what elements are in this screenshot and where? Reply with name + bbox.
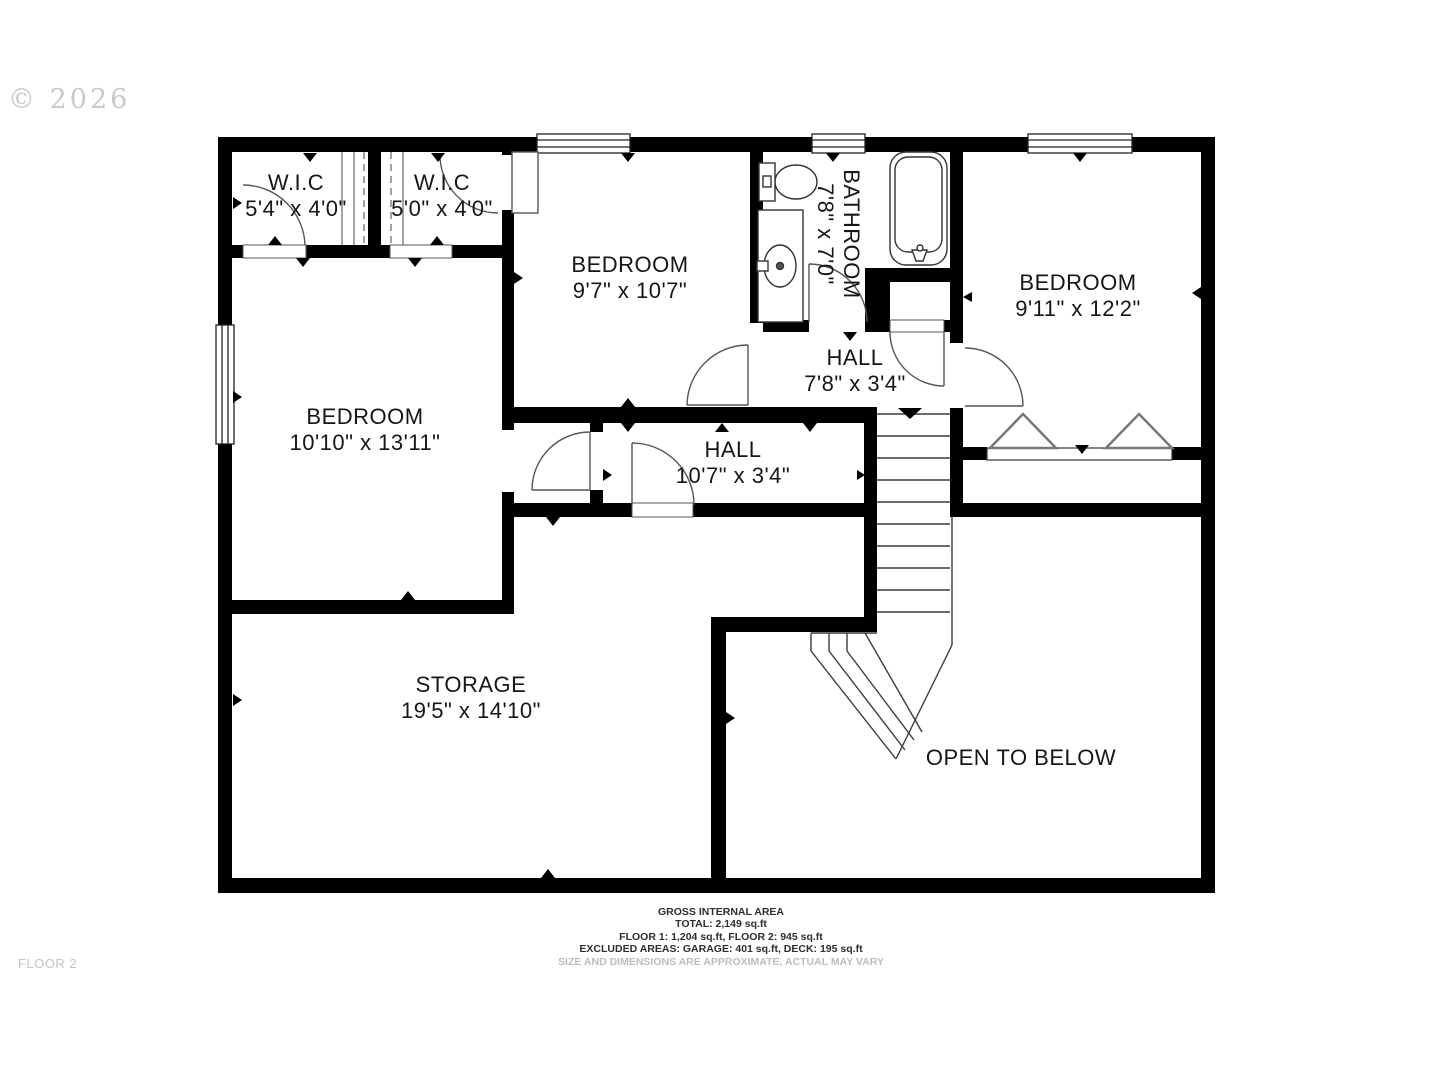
excluded-areas: EXCLUDED AREAS: GARAGE: 401 sq.ft, DECK:… [558,943,884,955]
room-label-hall-2: HALL 10'7" x 3'4" [676,437,790,489]
floor-areas: FLOOR 1: 1,204 sq.ft, FLOOR 2: 945 sq.ft [558,931,884,943]
room-label-wic-1: W.I.C 5'4" x 4'0" [245,170,347,222]
sink-vanity-fixture [757,210,803,322]
floor-plan-page: © 2026 W.I.C 5'4" x 4'0" W.I.C 5'0" x 4'… [0,0,1440,1080]
room-name: W.I.C [391,170,493,196]
room-label-wic-2: W.I.C 5'0" x 4'0" [391,170,493,222]
room-dims: 7'8" x 3'4" [804,371,906,397]
room-label-open-below: OPEN TO BELOW [926,745,1116,771]
floor-number-label: FLOOR 2 [18,956,77,971]
walls [218,137,1215,893]
room-label-bedroom-1: BEDROOM 9'7" x 10'7" [571,252,688,304]
room-dims: 10'10" x 13'11" [290,430,441,456]
room-name: W.I.C [245,170,347,196]
room-label-bedroom-2: BEDROOM 9'11" x 12'2" [1015,270,1141,322]
total-area: TOTAL: 2,149 sq.ft [558,918,884,930]
disclaimer: SIZE AND DIMENSIONS ARE APPROXIMATE, ACT… [558,956,884,968]
room-name: BEDROOM [1015,270,1141,296]
room-label-storage: STORAGE 19'5" x 14'10" [401,672,541,724]
area-summary: GROSS INTERNAL AREA TOTAL: 2,149 sq.ft F… [558,906,884,968]
window-bedroom3-left [216,325,234,444]
room-name: HALL [676,437,790,463]
gross-area-title: GROSS INTERNAL AREA [558,906,884,918]
room-dims: 19'5" x 14'10" [401,698,541,724]
window-bedroom1-top [537,134,630,153]
room-dims: 10'7" x 3'4" [676,463,790,489]
room-name: BEDROOM [571,252,688,278]
staircase [811,408,952,759]
room-name: BEDROOM [290,404,441,430]
room-dims: 9'11" x 12'2" [1015,296,1141,322]
room-label-hall-1: HALL 7'8" x 3'4" [804,345,906,397]
room-label-bathroom: BATHROOM 7'8" x 7'0" [812,169,864,298]
window-bathroom-top [812,134,865,153]
room-name: HALL [804,345,906,371]
hanger-triangle-icon [1106,414,1172,448]
room-name: BATHROOM [838,169,864,298]
room-name: OPEN TO BELOW [926,745,1116,771]
room-name: STORAGE [401,672,541,698]
room-dims: 5'4" x 4'0" [245,196,347,222]
room-dims: 7'8" x 7'0" [812,169,838,298]
window-bedroom2-top [1028,134,1132,153]
room-dims: 5'0" x 4'0" [391,196,493,222]
room-label-bedroom-3: BEDROOM 10'10" x 13'11" [290,404,441,456]
closet-sliding-door [987,414,1172,460]
hanger-triangle-icon [990,414,1056,448]
toilet-fixture [759,163,817,201]
copyright-watermark: © 2026 [8,84,130,115]
room-dims: 9'7" x 10'7" [571,278,688,304]
bathtub-fixture [890,152,947,265]
